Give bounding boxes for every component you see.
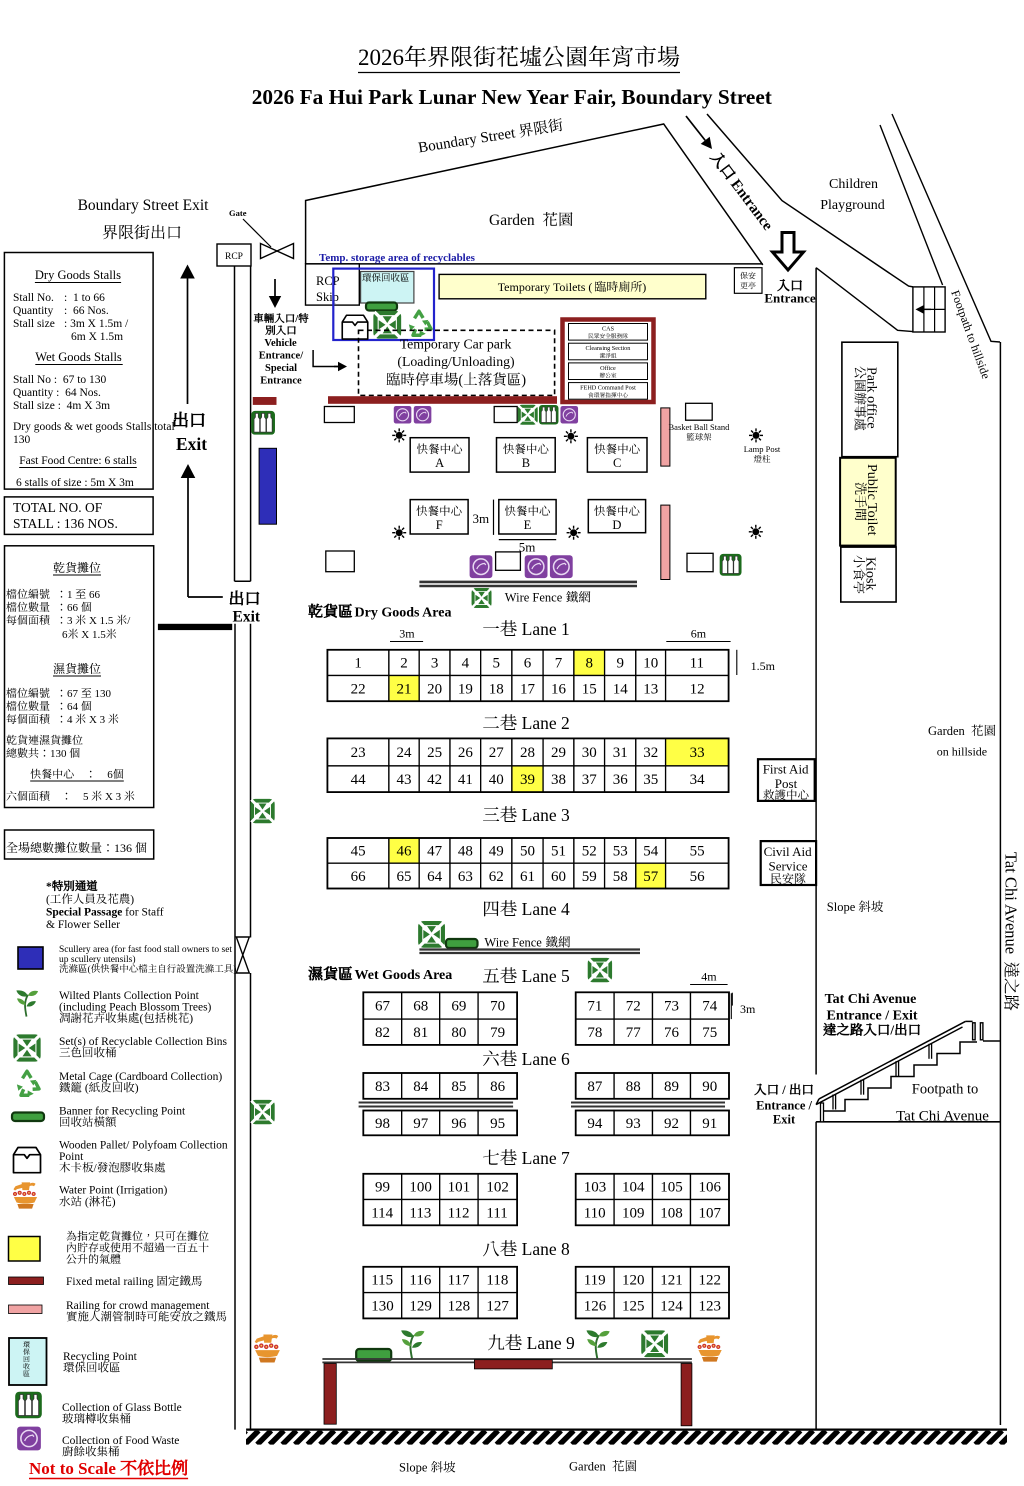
svg-text:94: 94: [587, 1116, 603, 1132]
svg-text:3m: 3m: [740, 1002, 756, 1016]
svg-text:C: C: [613, 456, 621, 470]
svg-text:128: 128: [448, 1299, 471, 1315]
svg-text:102: 102: [486, 1180, 509, 1196]
svg-text:Entrance/: Entrance/: [259, 351, 304, 362]
svg-text:68: 68: [413, 999, 428, 1015]
svg-text:72: 72: [626, 999, 641, 1015]
svg-text:37: 37: [582, 772, 598, 788]
svg-text:69: 69: [451, 999, 466, 1015]
svg-text:104: 104: [622, 1180, 645, 1196]
svg-text:110: 110: [584, 1205, 606, 1221]
svg-text:for Staff: for Staff: [122, 907, 163, 919]
svg-text:6m X 1.5m: 6m X 1.5m: [71, 331, 123, 343]
svg-text:Wet Goods Stalls: Wet Goods Stalls: [35, 350, 122, 364]
svg-text:5m: 5m: [519, 540, 536, 555]
svg-text:61: 61: [520, 869, 535, 885]
svg-text:46: 46: [397, 844, 413, 860]
svg-text:10: 10: [643, 656, 658, 672]
svg-text:Dry Goods Area: Dry Goods Area: [355, 606, 452, 621]
svg-text:Lane 4: Lane 4: [517, 899, 570, 919]
svg-text:120: 120: [622, 1273, 645, 1289]
svg-text:111: 111: [486, 1205, 507, 1221]
svg-text:6: 6: [524, 656, 532, 672]
svg-text:101: 101: [448, 1180, 471, 1196]
svg-text:126: 126: [584, 1299, 607, 1315]
svg-text:54: 54: [643, 844, 659, 860]
svg-text:A: A: [435, 456, 444, 470]
svg-text:53: 53: [613, 844, 628, 860]
svg-text:86: 86: [490, 1079, 506, 1095]
svg-text:107: 107: [699, 1205, 722, 1221]
svg-text:Children: Children: [829, 177, 878, 192]
svg-text:Exit: Exit: [773, 1113, 796, 1127]
svg-text:52: 52: [582, 844, 597, 860]
svg-text:Tat Chi Avenue: Tat Chi Avenue: [1002, 852, 1021, 958]
svg-text:124: 124: [660, 1299, 683, 1315]
svg-text:Point: Point: [59, 1151, 84, 1163]
svg-text:Office: Office: [600, 365, 616, 372]
svg-text:24: 24: [397, 745, 413, 761]
svg-text:16: 16: [551, 681, 567, 697]
svg-text:Entrance /: Entrance /: [756, 1099, 812, 1113]
svg-text:X 1.5: X 1.5: [79, 629, 107, 641]
svg-text:87: 87: [587, 1079, 603, 1095]
svg-text:(: (: [46, 894, 50, 906]
svg-text:Special Passage: Special Passage: [46, 907, 122, 919]
svg-text:95: 95: [490, 1116, 505, 1132]
svg-text:3m: 3m: [473, 511, 490, 526]
svg-text:*: *: [46, 881, 52, 893]
svg-text:44: 44: [351, 772, 367, 788]
svg-text:(: (: [82, 1197, 89, 1209]
svg-text:Recycling Point: Recycling Point: [63, 1351, 138, 1363]
svg-text:13: 13: [643, 681, 658, 697]
svg-text:Gate: Gate: [229, 208, 247, 218]
svg-text:123: 123: [699, 1299, 722, 1315]
svg-text:: 1 to 66: : 1 to 66: [64, 292, 105, 304]
svg-text:121: 121: [660, 1273, 683, 1289]
svg-text:49: 49: [489, 844, 504, 860]
svg-text:97: 97: [413, 1116, 429, 1132]
svg-text:Lane 1: Lane 1: [517, 619, 569, 639]
svg-text:Wire Fence: Wire Fence: [484, 936, 545, 950]
svg-text:Fixed metal railing: Fixed metal railing: [66, 1276, 156, 1288]
svg-text:73: 73: [664, 999, 679, 1015]
svg-text:129: 129: [409, 1299, 432, 1315]
svg-text:Vehicle: Vehicle: [264, 338, 297, 349]
svg-text:115: 115: [371, 1273, 393, 1289]
svg-text:1: 1: [67, 589, 75, 601]
svg-text:Lane 2: Lane 2: [517, 713, 569, 733]
svg-text:20: 20: [427, 681, 442, 697]
svg-text:X 1.5: X 1.5: [86, 615, 116, 627]
svg-text:CAS: CAS: [602, 326, 615, 333]
svg-text:Cleansing Section: Cleansing Section: [586, 345, 631, 352]
svg-text:Entrance / Exit: Entrance / Exit: [827, 1009, 918, 1024]
svg-text:on hillside: on hillside: [937, 745, 987, 759]
svg-text:85: 85: [451, 1079, 466, 1095]
svg-text:130: 130: [13, 434, 31, 446]
svg-text:51: 51: [551, 844, 566, 860]
svg-text:108: 108: [660, 1205, 683, 1221]
svg-text:Special: Special: [265, 363, 297, 374]
svg-text:40: 40: [489, 772, 504, 788]
svg-text:45: 45: [351, 844, 366, 860]
svg-text:Dry Goods Stalls: Dry Goods Stalls: [35, 268, 121, 282]
svg-text:130: 130: [371, 1299, 394, 1315]
svg-text:59: 59: [582, 869, 597, 885]
svg-text:66: 66: [351, 869, 367, 885]
svg-text:(Loading/Unloading): (Loading/Unloading): [397, 354, 514, 370]
svg-text:31: 31: [613, 745, 628, 761]
svg-text:98: 98: [375, 1116, 390, 1132]
svg-text:X 3: X 3: [86, 714, 108, 726]
svg-text:Post: Post: [775, 776, 798, 791]
svg-text:D: D: [612, 518, 621, 532]
svg-text:& Flower Seller: & Flower Seller: [46, 919, 120, 931]
svg-text:78: 78: [587, 1025, 602, 1041]
svg-text:4m: 4m: [701, 970, 717, 984]
svg-text:/: /: [889, 1023, 894, 1038]
svg-text:42: 42: [427, 772, 442, 788]
svg-text:90: 90: [702, 1079, 717, 1095]
svg-text:): ): [135, 1083, 139, 1095]
svg-text:Stall size: Stall size: [13, 318, 55, 330]
svg-text:): ): [112, 1197, 116, 1209]
svg-text:): ): [189, 1013, 193, 1025]
svg-text:up scullery utensils): up scullery utensils): [59, 954, 136, 965]
svg-text:(: (: [140, 1013, 144, 1025]
svg-text:4: 4: [462, 656, 470, 672]
svg-text:23: 23: [351, 745, 366, 761]
svg-text:4: 4: [67, 714, 75, 726]
svg-text:First Aid: First Aid: [763, 762, 809, 777]
svg-text:83: 83: [375, 1079, 390, 1095]
svg-text:70: 70: [490, 999, 505, 1015]
svg-text:STALL : 136 NOS.: STALL : 136 NOS.: [13, 516, 118, 531]
svg-text:FEHD Command Post: FEHD Command Post: [580, 385, 636, 392]
svg-text:Collection of Food Waste: Collection of Food Waste: [62, 1435, 179, 1447]
svg-text:E: E: [524, 518, 532, 532]
svg-text:Wire Fence: Wire Fence: [505, 591, 566, 605]
svg-text:50: 50: [520, 844, 535, 860]
svg-text:81: 81: [413, 1025, 428, 1041]
svg-text:6m: 6m: [691, 627, 707, 641]
svg-text:32: 32: [643, 745, 658, 761]
svg-text:Garden: Garden: [569, 1460, 612, 1474]
svg-text:122: 122: [699, 1273, 722, 1289]
svg-text:Entrance: Entrance: [764, 291, 816, 306]
svg-text:48: 48: [458, 844, 473, 860]
svg-text:Lamp Post: Lamp Post: [744, 444, 781, 454]
svg-text:113: 113: [409, 1205, 431, 1221]
svg-text:67: 67: [375, 999, 391, 1015]
svg-text:62: 62: [489, 869, 504, 885]
svg-text:(: (: [82, 1083, 89, 1095]
svg-text:Lane 7: Lane 7: [517, 1148, 570, 1168]
svg-text:Collection of Glass Bottle: Collection of Glass Bottle: [62, 1402, 182, 1414]
svg-text:Not to Scale: Not to Scale: [29, 1459, 120, 1478]
svg-text:38: 38: [551, 772, 566, 788]
svg-text:Stall size : 4m X 3m: Stall size : 4m X 3m: [13, 400, 110, 412]
svg-text:Lane 3: Lane 3: [517, 805, 570, 825]
svg-text:9: 9: [617, 656, 625, 672]
svg-text:119: 119: [584, 1273, 606, 1289]
svg-text:Lane 8: Lane 8: [517, 1239, 570, 1259]
svg-text:118: 118: [486, 1273, 508, 1289]
svg-text:12: 12: [690, 681, 705, 697]
svg-text:Metal Cage (Cardboard Collecti: Metal Cage (Cardboard Collection): [59, 1071, 222, 1083]
svg-text:79: 79: [490, 1025, 505, 1041]
svg-text:1: 1: [354, 656, 362, 672]
svg-text:6: 6: [107, 769, 113, 781]
svg-text:Boundary Street Exit: Boundary Street Exit: [78, 197, 210, 214]
svg-text:22: 22: [351, 681, 366, 697]
svg-text:91: 91: [702, 1116, 717, 1132]
svg-text:112: 112: [448, 1205, 470, 1221]
svg-text:66: 66: [67, 602, 81, 614]
svg-text:47: 47: [427, 844, 443, 860]
svg-text:127: 127: [486, 1299, 509, 1315]
svg-text:): ): [642, 280, 646, 294]
svg-text:2: 2: [400, 656, 408, 672]
svg-text:136: 136: [114, 841, 135, 855]
svg-text:/: /: [779, 1083, 789, 1097]
svg-text:109: 109: [622, 1205, 645, 1221]
svg-text:100: 100: [409, 1180, 432, 1196]
svg-text:Wet Goods Area: Wet Goods Area: [355, 968, 453, 983]
svg-text:: 3m X 1.5m /: : 3m X 1.5m /: [64, 318, 129, 330]
svg-text:Slope: Slope: [827, 900, 859, 914]
svg-text:76: 76: [664, 1025, 680, 1041]
svg-text:103: 103: [584, 1180, 607, 1196]
svg-text:): ): [521, 373, 526, 389]
svg-text:84: 84: [413, 1079, 429, 1095]
svg-text:82: 82: [375, 1025, 390, 1041]
svg-text:74: 74: [702, 999, 718, 1015]
svg-text:3m: 3m: [399, 627, 415, 641]
svg-text:Footpath to: Footpath to: [912, 1082, 978, 1098]
svg-text:Water Point (Irrigation): Water Point (Irrigation): [59, 1185, 167, 1197]
svg-text:7: 7: [555, 656, 563, 672]
svg-text:Entrance: Entrance: [260, 376, 302, 387]
svg-text:30: 30: [582, 745, 597, 761]
svg-text:Scullery area (for fast food s: Scullery area (for fast food stall owner…: [59, 944, 232, 955]
svg-text:B: B: [522, 456, 530, 470]
svg-text:3: 3: [431, 656, 439, 672]
svg-text:19: 19: [458, 681, 473, 697]
svg-text:105: 105: [660, 1180, 683, 1196]
svg-text:21: 21: [397, 681, 412, 697]
svg-text:): ): [130, 894, 134, 906]
svg-text:114: 114: [371, 1205, 393, 1221]
svg-text:106: 106: [699, 1180, 722, 1196]
svg-text:Stall No.: Stall No.: [13, 292, 54, 304]
svg-text:34: 34: [690, 772, 706, 788]
svg-text:25: 25: [427, 745, 442, 761]
svg-text:Lane 9: Lane 9: [522, 1333, 575, 1353]
svg-text:(: (: [458, 373, 463, 389]
svg-text:Garden: Garden: [489, 212, 542, 229]
svg-text:55: 55: [690, 844, 705, 860]
svg-text:18: 18: [489, 681, 504, 697]
svg-text:8: 8: [586, 656, 594, 672]
svg-text:15: 15: [582, 681, 597, 697]
svg-text:Dry goods & wet goods Stalls t: Dry goods & wet goods Stalls total: [13, 421, 175, 433]
svg-text:Civil Aid: Civil Aid: [764, 844, 813, 859]
svg-text:Tat Chi Avenue: Tat Chi Avenue: [896, 1109, 989, 1125]
svg-text:RCP: RCP: [316, 274, 340, 288]
svg-text:41: 41: [458, 772, 473, 788]
svg-text:64: 64: [67, 701, 81, 713]
svg-text:2026 Fa Hui Park Lunar New Yea: 2026 Fa Hui Park Lunar New Year Fair, Bo…: [252, 85, 772, 109]
svg-text:58: 58: [613, 869, 628, 885]
svg-text:RCP: RCP: [225, 252, 243, 262]
svg-text:Quantity : 64 Nos.: Quantity : 64 Nos.: [13, 387, 101, 399]
svg-text:Tat Chi Avenue: Tat Chi Avenue: [825, 992, 917, 1007]
svg-text:Temp. storage area of recyclab: Temp. storage area of recyclables: [319, 252, 476, 264]
svg-text:56: 56: [690, 869, 706, 885]
svg-text:33: 33: [690, 745, 705, 761]
svg-text:Exit: Exit: [176, 434, 207, 454]
svg-text:TOTAL NO. OF: TOTAL NO. OF: [13, 500, 103, 515]
svg-text:14: 14: [613, 681, 629, 697]
svg-text:F: F: [436, 518, 443, 532]
svg-text:27: 27: [489, 745, 505, 761]
svg-text:5: 5: [83, 791, 91, 803]
svg-text:43: 43: [397, 772, 412, 788]
svg-text:5: 5: [493, 656, 501, 672]
svg-text:Wooden Pallet/ Polyfoam Collec: Wooden Pallet/ Polyfoam Collection: [59, 1140, 228, 1152]
svg-text:Banner for Recycling Point: Banner for Recycling Point: [59, 1106, 186, 1118]
svg-text:6 stalls of size : 5m X 3m: 6 stalls of size : 5m X 3m: [16, 477, 134, 489]
svg-text:Railing for crowd management: Railing for crowd management: [66, 1300, 210, 1312]
svg-text:(including Peach Blossom Trees: (including Peach Blossom Trees): [59, 1002, 212, 1014]
svg-text:29: 29: [551, 745, 566, 761]
svg-text:: 66 Nos.: : 66 Nos.: [64, 305, 109, 317]
svg-text:130: 130: [92, 688, 112, 700]
svg-text:1.5m: 1.5m: [751, 659, 776, 673]
svg-text:35: 35: [643, 772, 658, 788]
svg-text:130: 130: [50, 748, 69, 760]
svg-text:67: 67: [67, 688, 81, 700]
svg-text:36: 36: [613, 772, 629, 788]
svg-text:39: 39: [520, 772, 535, 788]
svg-text:3: 3: [67, 615, 75, 627]
svg-text:71: 71: [587, 999, 602, 1015]
svg-text:Service: Service: [769, 859, 808, 874]
svg-text:17: 17: [520, 681, 536, 697]
svg-text:(: (: [88, 964, 91, 975]
svg-text:117: 117: [448, 1273, 470, 1289]
svg-text:77: 77: [626, 1025, 642, 1041]
svg-text:Fast Food Centre: 6 stalls: Fast Food Centre: 6 stalls: [19, 455, 137, 467]
svg-text:Set(s) of Recyclable Collectio: Set(s) of Recyclable Collection Bins: [59, 1036, 228, 1048]
svg-text:60: 60: [551, 869, 566, 885]
svg-text:X 3: X 3: [102, 791, 124, 803]
svg-text:93: 93: [626, 1116, 641, 1132]
svg-text:Playground: Playground: [820, 198, 885, 213]
svg-text:92: 92: [664, 1116, 679, 1132]
svg-text:11: 11: [690, 656, 704, 672]
svg-text:57: 57: [643, 869, 659, 885]
svg-text:63: 63: [458, 869, 473, 885]
svg-text:Temporary Toilets (: Temporary Toilets (: [498, 280, 593, 294]
svg-text:65: 65: [397, 869, 412, 885]
svg-text:Lane 6: Lane 6: [517, 1049, 570, 1069]
svg-text:Public Toilet: Public Toilet: [864, 464, 879, 536]
svg-text:88: 88: [626, 1079, 641, 1095]
svg-text:Skip: Skip: [316, 290, 339, 304]
svg-text:28: 28: [520, 745, 535, 761]
svg-text:26: 26: [458, 745, 474, 761]
svg-text:Stall No : 67 to 130: Stall No : 67 to 130: [13, 374, 107, 386]
svg-text:75: 75: [702, 1025, 717, 1041]
svg-text:Lane 5: Lane 5: [517, 966, 570, 986]
svg-text:99: 99: [375, 1180, 390, 1196]
svg-text:6: 6: [62, 629, 68, 641]
svg-text:66: 66: [86, 589, 100, 601]
svg-text:Basket Ball Stand: Basket Ball Stand: [669, 422, 731, 432]
svg-text:Slope: Slope: [399, 1461, 431, 1475]
svg-text:116: 116: [409, 1273, 431, 1289]
svg-text:125: 125: [622, 1299, 645, 1315]
svg-text:Garden: Garden: [928, 724, 971, 738]
svg-text:Wilted Plants Collection Point: Wilted Plants Collection Point: [59, 990, 200, 1002]
svg-text:2026: 2026: [358, 45, 404, 70]
svg-text:80: 80: [451, 1025, 466, 1041]
svg-text:Exit: Exit: [233, 609, 261, 626]
svg-text:96: 96: [451, 1116, 467, 1132]
svg-text:89: 89: [664, 1079, 679, 1095]
svg-text:64: 64: [427, 869, 443, 885]
svg-text:Quantity: Quantity: [13, 305, 53, 317]
svg-text:Temporary Car park: Temporary Car park: [400, 337, 512, 352]
